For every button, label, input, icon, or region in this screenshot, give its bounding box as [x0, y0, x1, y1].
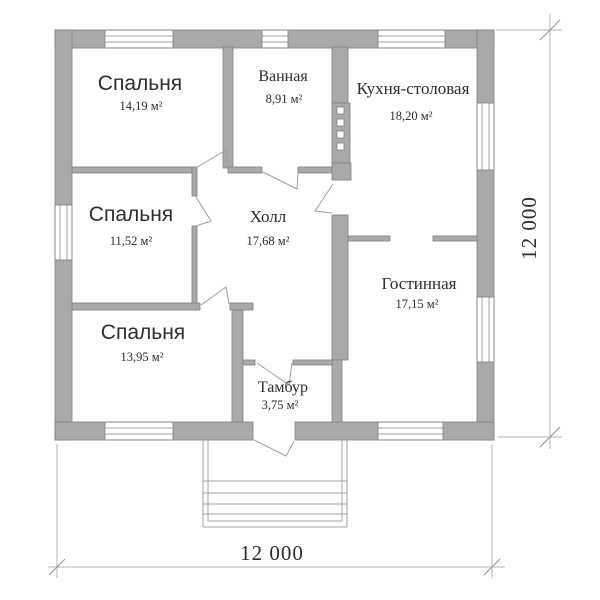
- room-bedroom-2: Спальня 11,52 м²: [89, 203, 173, 248]
- vent-shaft-block: [332, 103, 351, 180]
- door-bathroom: [263, 172, 298, 189]
- room-area: 8,91 м²: [266, 92, 303, 106]
- room-area: 17,15 м²: [396, 297, 439, 311]
- wall-bottom-segment: [295, 422, 378, 440]
- room-kitchen-dining: Кухня-столовая 18,20 м²: [357, 79, 470, 123]
- window-living-right: [477, 297, 494, 362]
- room-name: Тамбур: [258, 379, 308, 396]
- window-bedroom3: [105, 422, 173, 440]
- window-glass: [60, 205, 67, 260]
- window-bedroom2: [55, 205, 72, 260]
- porch-steps: [203, 440, 347, 527]
- room-area: 11,52 м²: [110, 234, 153, 248]
- wall-kitchen-living: [433, 236, 477, 241]
- dimension-bottom: 12 000: [48, 444, 505, 578]
- vent-channel-icon: [337, 107, 344, 114]
- floor-plan-drawing: 12 000 12 000 Спальня 14,19 м² Ванная 8,…: [0, 0, 600, 600]
- room-name: Холл: [250, 207, 287, 226]
- wall-right-segment: [477, 30, 494, 103]
- room-bedroom-3: Спальня 13,95 м²: [101, 321, 185, 364]
- wall-kitchen-living: [348, 236, 390, 241]
- wall-bathroom-hall: [298, 167, 332, 173]
- door-bedroom2: [196, 197, 211, 226]
- vent-channel-icon: [337, 143, 344, 150]
- room-vestibule: Тамбур 3,75 м²: [258, 379, 308, 412]
- room-name: Спальня: [101, 321, 185, 344]
- door-bedroom3: [201, 287, 229, 305]
- wall-bedroom3-top: [230, 303, 253, 310]
- door-kitchen: [315, 184, 333, 213]
- room-name: Ванная: [258, 68, 308, 85]
- wall-vestibule-top: [293, 360, 332, 365]
- room-bedroom-1: Спальня 14,19 м²: [98, 72, 182, 113]
- room-area: 17,68 м²: [247, 234, 290, 248]
- window-living-bottom: [378, 422, 443, 440]
- vent-channel-icon: [337, 119, 344, 126]
- room-living: Гостинная 17,15 м²: [382, 274, 457, 311]
- window-glass: [262, 36, 288, 42]
- window-glass: [105, 428, 173, 434]
- wall-bedroom3-top: [72, 303, 200, 310]
- wall-bedrooms-hall: [72, 167, 192, 173]
- room-name: Гостинная: [382, 274, 457, 293]
- wall-left-segment: [55, 260, 72, 440]
- wall-left-segment: [55, 30, 72, 205]
- room-area: 18,20 м²: [390, 109, 433, 123]
- floor-plan-page: 12 000 12 000 Спальня 14,19 м² Ванная 8,…: [0, 0, 600, 600]
- room-hall: Холл 17,68 м²: [247, 207, 290, 248]
- wall-bedroom3-vestibule: [232, 310, 243, 422]
- window-glass: [482, 297, 489, 362]
- window-glass: [378, 428, 443, 434]
- wall-bedroom2-hall: [192, 226, 197, 310]
- room-labels: Спальня 14,19 м² Ванная 8,91 м² Кухня-ст…: [89, 68, 470, 412]
- dimension-right: 12 000: [496, 14, 562, 449]
- wall-top-segment: [288, 30, 378, 48]
- window-kitchen-top: [378, 30, 445, 48]
- window-bathroom: [262, 30, 288, 48]
- room-area: 14,19 м²: [120, 99, 163, 113]
- wall-bathroom-kitchen: [332, 47, 348, 103]
- window-glass: [378, 36, 445, 42]
- wall-bottom-segment: [55, 422, 105, 440]
- wall-bathroom-hall: [228, 167, 262, 173]
- vent-channel-icon: [337, 131, 344, 138]
- wall-hall-living: [332, 215, 348, 360]
- door-entrance: [254, 440, 294, 456]
- room-bathroom: Ванная 8,91 м²: [258, 68, 308, 106]
- window-bedroom1: [105, 30, 173, 48]
- window-kitchen-right: [477, 103, 494, 170]
- room-name: Спальня: [89, 203, 173, 226]
- room-name: Кухня-столовая: [357, 79, 470, 98]
- room-area: 3,75 м²: [262, 398, 299, 412]
- room-name: Спальня: [98, 72, 182, 95]
- vent-shaft-base: [332, 163, 351, 180]
- dimension-bottom-label: 12 000: [240, 541, 304, 565]
- wall-top-segment: [173, 30, 262, 48]
- wall-bottom-segment: [173, 422, 253, 440]
- wall-bedroom2-hall: [192, 167, 197, 196]
- room-area: 13,95 м²: [121, 350, 164, 364]
- wall-bedroom1-bathroom: [223, 47, 233, 168]
- wall-right-segment: [477, 170, 494, 297]
- wall-bottom-segment: [443, 422, 494, 440]
- wall-vestibule-right: [332, 360, 342, 422]
- window-glass: [482, 103, 489, 170]
- window-glass: [105, 36, 173, 42]
- dimension-right-label: 12 000: [517, 196, 541, 260]
- wall-vestibule-top: [243, 360, 255, 365]
